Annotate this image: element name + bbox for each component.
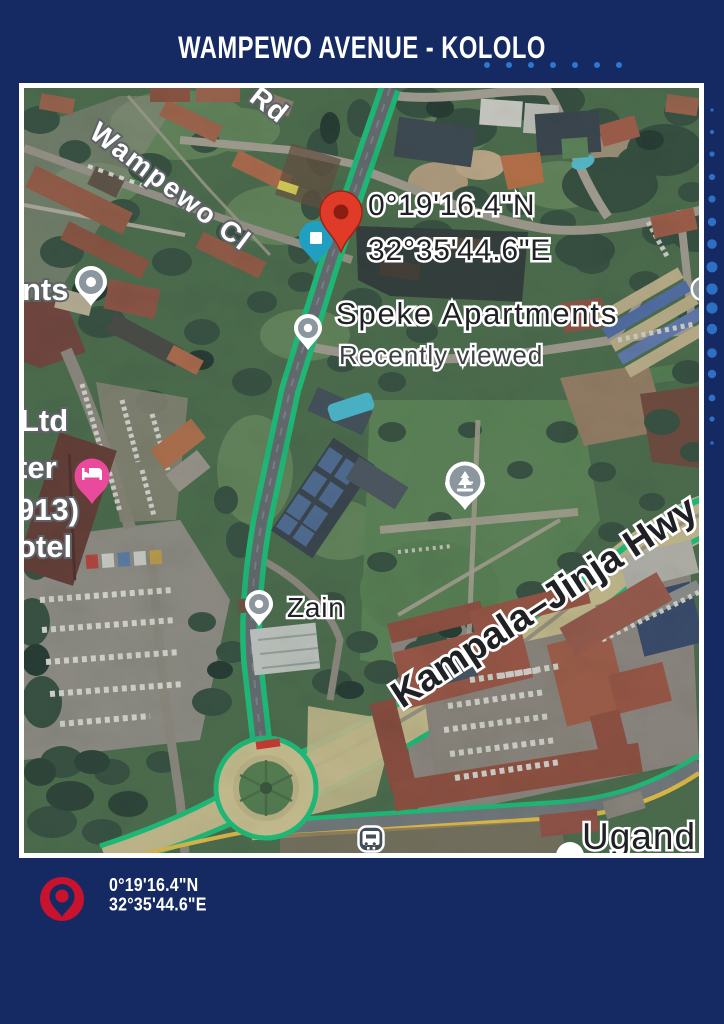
svg-text:otel: otel [24,529,72,564]
svg-text:913): 913) [24,492,79,527]
svg-text:Speke Apartments: Speke Apartments [336,296,618,331]
svg-text:Ltd: Ltd [24,403,68,438]
svg-text:Zain: Zain [287,592,345,623]
svg-text:Recently viewed: Recently viewed [339,340,543,370]
svg-text:0°19'16.4"N: 0°19'16.4"N [368,189,535,222]
svg-text:32°35'44.6"E: 32°35'44.6"E [368,234,551,267]
svg-text:Ugand: Ugand [582,816,696,853]
svg-text:ter: ter [24,450,57,485]
svg-text:nts: nts [24,272,69,307]
